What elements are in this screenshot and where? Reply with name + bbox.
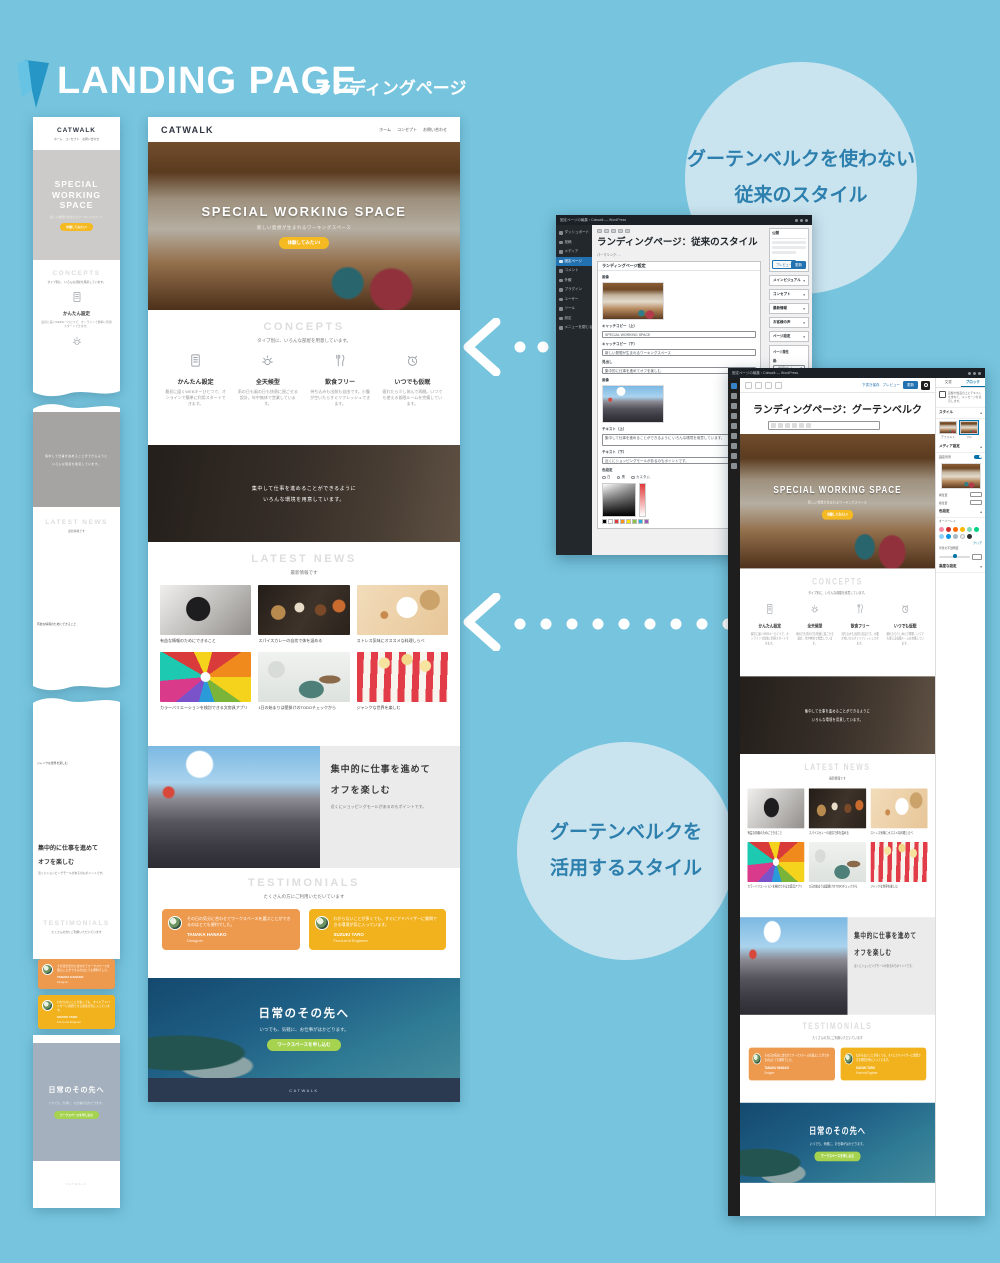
menu-users[interactable]: ユーザー [556, 295, 592, 305]
landing-page: CATWALK ホーム コンセプト お問い合わせ SPECIAL WORKING… [740, 434, 935, 1186]
news-image-hooks [258, 652, 349, 702]
wave-tear [33, 682, 120, 706]
spacer [33, 1035, 120, 1043]
testimonials-heading-block: TESTIMONIALS たくさんの方にご利用いただいています [33, 911, 120, 959]
concept-title: かんたん設定 [164, 377, 227, 386]
banner-line1: 集中して仕事を進めることができるように [805, 708, 870, 714]
news-caption: 有益な情報のためにできること [748, 831, 805, 835]
opacity-slider-row [936, 552, 985, 562]
site-footer: CATWALK [148, 1078, 460, 1102]
testimonial-card: わからないことが多くても、すぐにアドバイザーに質問できる環境が気に入っています。… [840, 1048, 926, 1081]
news-card[interactable]: ジャンクな世界を楽しむ [870, 842, 927, 889]
settings-gear-icon[interactable] [921, 381, 930, 390]
testimonial-name: SUZUKI TARO [57, 1015, 111, 1019]
palette-color[interactable] [939, 527, 944, 532]
testimonials-section: TESTIMONIALS たくさんの方にご利用いただいています その日の気分に合… [148, 868, 460, 978]
menu-settings[interactable]: 設定 [556, 314, 592, 324]
palette-color[interactable] [953, 527, 958, 532]
workstyle-banner-overlay: 集中して仕事を進めることができるように いろんな環境を用意しています。 [148, 445, 460, 542]
panel-title[interactable]: ページ属性 [773, 349, 805, 354]
concept-title: 飲食フリー [840, 622, 880, 629]
callout-text: グーテンベルクを [550, 815, 702, 851]
hero-image: SPECIAL WORKING SPACE 新しい発想が生まれるワーキングスペー… [740, 434, 935, 568]
news-card[interactable]: スパイスカレーの自炊で体を温める [258, 585, 349, 644]
news-caption: 有益な情報のためにできること [160, 638, 251, 644]
tool-icon[interactable] [731, 393, 737, 399]
panel-styles[interactable]: スタイル▴ [936, 408, 985, 419]
wp-admin-sidebar: ダッシュボード 投稿 メディア 固定ページ コメント 外観 プラグイン ユーザー… [556, 225, 592, 555]
concept-item: かんたん設定 最初に届くWEBキーひとつで、オンラインで簡単に利用スタートできま… [750, 603, 790, 647]
landing-page: CATWALK ホーム コンセプト お問い合わせ SPECIAL WORKING… [148, 117, 460, 1102]
panel-advanced[interactable]: 高度な設定▾ [936, 562, 985, 573]
callout-text: 従来のスタイル [734, 178, 867, 214]
focal-input-row: 縦位置 [936, 499, 985, 507]
news-card[interactable]: 有益な情報のためにできること [748, 788, 805, 835]
hero-cta-button[interactable]: 体験してみたい! [279, 237, 330, 249]
banner-line2: いろんな環境を用意しています。 [812, 717, 863, 723]
desktop-screenshot: CATWALK ホーム コンセプト お問い合わせ SPECIAL WORKING… [148, 117, 460, 1102]
side-panel[interactable]: ページ設定▾ [769, 331, 809, 342]
news-image-hooks [809, 842, 866, 882]
concepts-heading: CONCEPTS [148, 321, 460, 333]
news-card[interactable]: 1日の始まりは壁掛けのTODOチェックから [809, 842, 866, 889]
concept-desc: 最初に届くWEBキーひとつで、オンラインで簡単に利用スタートできます。 [750, 632, 790, 647]
workstyle-banner-overlay: 集中して仕事を進めることができるように いろんな環境を用意しています。 [33, 412, 120, 507]
testimonial-role: Front-end Engineer [334, 938, 441, 943]
testimonial-name: SUZUKI TARO [334, 932, 441, 937]
window-titlebar: 固定ページの編集 ‹ Catwalk — WordPress [728, 368, 985, 378]
testimonial-card: わからないことが多くても、すぐにアドバイザーに質問できる環境が気に入っています。… [38, 995, 115, 1029]
focal-y-input[interactable] [970, 500, 982, 505]
panel-media[interactable]: メディア設定▴ [936, 442, 985, 453]
concept-title: かんたん設定 [33, 311, 120, 317]
concepts-section: CONCEPTS タイプ別に、いろんな部屋を用意しています。 かんたん設定 最初… [740, 568, 935, 676]
palette-color[interactable] [946, 534, 951, 539]
cta-button[interactable]: ワークスペースを申し込む [815, 1152, 861, 1162]
palette-color[interactable] [939, 534, 944, 539]
post-title[interactable]: ランディングページ：従来のスタイル [597, 237, 761, 249]
concept-desc: 疲れたら少し休んで再開。いつでも使える仮眠ルームを完備しています。 [381, 389, 444, 408]
block-toolbar[interactable] [768, 421, 880, 430]
field-label: キャッチコピー（下） [602, 342, 756, 347]
field-label: キャッチコピー（上） [602, 324, 756, 329]
side-panel[interactable]: コンセプト▾ [769, 289, 809, 300]
side-panel[interactable]: メインビジュアル▾ [769, 275, 809, 286]
news-card[interactable]: ジャンクな世界を楽しむ [357, 652, 448, 711]
update-button[interactable]: 更新 [903, 381, 918, 389]
overlay-label-row: オーバーレイ [936, 518, 985, 525]
cta-overlay: 日常のその先へ いつでも、気軽に、お仕事がはかどります。 ワークスペースを申し込… [33, 1043, 120, 1161]
site-footer: CATWALK [33, 1161, 120, 1208]
publish-box: 公開 プレビュー 更新 [769, 228, 809, 272]
nav-item-contact[interactable]: お問い合わせ [82, 137, 99, 141]
testimonial-name: TANAKA HANAKO [57, 975, 111, 979]
site-nav: ホーム コンセプト お問い合わせ [54, 137, 99, 141]
testimonials-heading: TESTIMONIALS [740, 1022, 935, 1032]
field-label: 画像 [602, 275, 756, 280]
feature-line1: 集中的に仕事を進めて [331, 762, 449, 775]
banner-line2: いろんな環境を用意しています。 [52, 462, 101, 466]
panel-color[interactable]: 色設定▴ [936, 507, 985, 518]
palette-color[interactable] [946, 527, 951, 532]
cta-section-image: 日常のその先へ いつでも、気軽に、お仕事がはかどります。 ワークスペースを申し込… [148, 978, 460, 1078]
testimonial-text: わからないことが多くても、すぐにアドバイザーに質問できる環境が気に入っています。 [334, 916, 441, 929]
side-panel[interactable]: お客様の声▾ [769, 317, 809, 328]
sidebar-tabs: 文書 ブロック [936, 378, 985, 388]
wordpress-gutenberg-editor-window: 固定ページの編集 ‹ Catwalk — WordPress 下書き保存 [728, 368, 985, 1216]
palette-color[interactable] [974, 527, 979, 532]
news-caption: 1日の始まりは壁掛けのTODOチェックから [258, 705, 349, 711]
palette-color[interactable] [960, 534, 965, 539]
window-titlebar: 固定ページの編集 ‹ Catwalk — WordPress [556, 215, 812, 225]
nav-item-concept[interactable]: コンセプト [65, 137, 79, 141]
news-caption: ジャンクな世界を楽しむ [357, 705, 448, 711]
site-header: CATWALK ホーム コンセプト お問い合わせ [33, 117, 120, 150]
news-section: LATEST NEWS 最新情報です 有益な情報のためにできること スパイスカレ… [148, 542, 460, 746]
gutenberg-settings-sidebar: 文書 ブロック 画像や動画の上にテキストを重ねて、メッセージを表示します。 スタ… [935, 378, 985, 1216]
news-grid: 有益な情報のためにできること スパイスカレーの自炊で体を温める ストレス気味にオ… [148, 576, 460, 710]
concept-desc: 雨の日も風の日も快適に過ごせる設計。年中無休で営業しています。 [236, 389, 299, 408]
opacity-input[interactable] [972, 554, 982, 560]
nav-item-concept[interactable]: コンセプト [397, 127, 417, 133]
hue-bar[interactable] [639, 483, 646, 517]
news-heading: LATEST NEWS [740, 763, 935, 773]
hero-subtitle: 新しい発想が生まれるワーキングスペース [808, 500, 867, 505]
concept-title: いつでも仮眠 [381, 377, 444, 386]
feature-panel: 集中的に仕事を進めて オフを楽しむ 近くにショッピングモールがあるのもポイントで… [847, 917, 935, 1015]
banner-line1: 集中して仕事を進めることができるように [45, 454, 108, 458]
users-icon [559, 298, 563, 302]
text-input[interactable]: 新しい発想が生まれるワーキングスペース [602, 349, 756, 356]
callout-text: 活用するスタイル [550, 851, 702, 887]
testimonial-cards: その日の気分に合わせてワークスペースを選ぶことができるのはとても便利でした。 T… [740, 1040, 935, 1080]
news-image-cooking [357, 585, 448, 635]
style-option-selected[interactable]: フル [960, 421, 978, 439]
cta-text: いつでも、気軽に、お仕事がはかどります。 [810, 1142, 866, 1147]
testimonial-name: SUZUKI TARO [856, 1066, 923, 1070]
menu-plugins[interactable]: プラグイン [556, 285, 592, 295]
concept-desc: 最初に届くWEBキーひとつで、オンラインで簡単に利用スタートできます。 [164, 389, 227, 408]
tool-icon[interactable] [731, 443, 737, 449]
post-title[interactable]: ランディングページ：グーテンベルク [740, 401, 935, 416]
news-image-clock [33, 567, 120, 619]
news-image-pencils [748, 842, 805, 882]
concepts-grid: かんたん設定 最初に届くWEBキーひとつで、オンラインで簡単に利用スタートできま… [148, 344, 460, 408]
field-image-thumbnail[interactable] [602, 385, 664, 423]
menu-collapse[interactable]: メニューを閉じる [556, 323, 592, 333]
concepts-grid: かんたん設定 最初に届くWEBキーひとつで、オンラインで簡単に利用スタートできま… [740, 596, 935, 647]
news-card[interactable]: ストレス気味にオススメな料理しらべ [870, 788, 927, 835]
palette-color[interactable] [967, 527, 972, 532]
feature-desc: 近くにショッピングモールがあるのもポイントです。 [38, 871, 115, 875]
permalink-row[interactable]: パーマリンク: … [597, 252, 761, 257]
hero-subtitle: 新しい発想が生まれるワーキングスペース [50, 215, 103, 219]
news-card[interactable]: ストレス気味にオススメな料理しらべ [357, 585, 448, 644]
menu-pages[interactable]: 固定ページ [556, 257, 592, 267]
callout-text: グーテンベルクを使わない [687, 142, 915, 178]
feature-line1: 集中的に仕事を進めて [854, 930, 928, 940]
poster-canvas: LANDING PAGE ランディングページ グーテンベルクを使わない 従来のス… [0, 0, 1000, 1263]
dashboard-icon [559, 231, 563, 235]
news-section-heading: LATEST NEWS 最新情報です [33, 507, 120, 567]
wave-tear [33, 388, 120, 412]
document-icon [71, 291, 83, 303]
cutlery-icon [333, 353, 348, 368]
concept-title: 全天候型 [795, 622, 835, 629]
testimonial-card: その日の気分に合わせてワークスペースを選ぶことができるのはとても便利でした。 T… [38, 959, 115, 989]
news-image-clock [160, 585, 251, 635]
news-lead: 最新情報です [33, 529, 120, 533]
style-option[interactable]: デフォルト [939, 421, 957, 439]
window-controls[interactable] [795, 219, 808, 222]
site-logo[interactable]: CATWALK [161, 125, 214, 135]
mobile-screenshot-strip: CATWALK ホーム コンセプト お問い合わせ SPECIAL WORKING… [33, 117, 120, 1215]
testimonial-card: わからないことが多くても、すぐにアドバイザーに質問できる環境が気に入っています。… [309, 909, 447, 950]
tool-icon[interactable] [731, 413, 737, 419]
info-icon[interactable] [775, 382, 782, 389]
news-image-popcorn [357, 652, 448, 702]
style-thumbnails: デフォルト フル [936, 419, 985, 442]
page-title: LANDING PAGE [57, 60, 358, 103]
banner-line1: 集中して仕事を進めることができるように [252, 485, 356, 492]
feature-panel: 集中的に仕事を進めて オフを楽しむ 近くにショッピングモールがあるのもポイントで… [33, 833, 120, 911]
site-logo[interactable]: CATWALK [57, 127, 96, 134]
hero-overlay: SPECIAL WORKING SPACE 新しい発想が生まれるワーキングスペー… [740, 434, 935, 568]
document-icon [765, 603, 774, 615]
news-caption: スパイスカレーの自炊で体を温める [809, 831, 866, 835]
concepts-heading: CONCEPTS [33, 270, 120, 277]
browser-side-strip [728, 378, 740, 1216]
alarm-clock-icon [405, 353, 420, 368]
feature-image-market [148, 746, 320, 868]
pages-icon [559, 260, 563, 264]
hero-image: SPECIAL WORKING SPACE 新しい発想が生まれるワーキングスペー… [33, 150, 120, 260]
tool-icon[interactable] [731, 433, 737, 439]
concept-desc: 疲れたら少し休んで再開。いつでも使える仮眠ルームを完備しています。 [885, 632, 925, 647]
feature-image-market [740, 917, 847, 1015]
page-subtitle: ランディングページ [315, 74, 466, 99]
concept-title: 全天候型 [236, 377, 299, 386]
workstyle-banner-image: 集中して仕事を進めることができるように いろんな環境を用意しています。 [740, 676, 935, 754]
cta-heading: 日常のその先へ [809, 1124, 866, 1137]
menu-comments[interactable]: コメント [556, 266, 592, 276]
metabox-title[interactable]: ランディングページ設定 [598, 262, 760, 271]
posts-icon [559, 241, 563, 245]
redo-icon[interactable] [765, 382, 772, 389]
field-label: 見出し [602, 360, 756, 365]
block-description: 画像や動画の上にテキストを重ねて、メッセージを表示します。 [936, 388, 985, 408]
preview-button[interactable]: プレビュー [883, 383, 901, 388]
menu-tools[interactable]: ツール [556, 304, 592, 314]
workstyle-banner-overlay: 集中して仕事を進めることができるように いろんな環境を用意しています。 [740, 676, 935, 754]
cta-button[interactable]: ワークスペースを申し込む [54, 1111, 99, 1119]
palette-color[interactable] [953, 534, 958, 539]
weather-icon [71, 335, 83, 347]
focal-x-input[interactable] [970, 492, 982, 497]
tool-icon[interactable] [731, 423, 737, 429]
feature-desc: 近くにショッピングモールがあるのもポイントです。 [854, 964, 928, 969]
concept-desc: 雨の日も風の日も快適に過ごせる設計。年中無休で営業しています。 [795, 632, 835, 647]
brand-pennant-icon [17, 60, 51, 110]
palette-color[interactable] [960, 527, 965, 532]
concepts-heading: CONCEPTS [740, 577, 935, 587]
settings-icon [559, 317, 563, 321]
toggle-switch[interactable] [974, 455, 982, 459]
plugins-icon [559, 288, 563, 292]
fixed-background-toggle-row: 固定背景 [936, 453, 985, 461]
banner-line2: いろんな環境を用意しています。 [263, 496, 345, 503]
cta-button[interactable]: ワークスペースを申し込む [267, 1039, 340, 1051]
concept-item: 全天候型 雨の日も風の日も快適に過ごせる設計。年中無休で営業しています。 [795, 603, 835, 647]
inserter-icon[interactable] [731, 383, 737, 389]
palette-color[interactable] [967, 534, 972, 539]
document-icon [188, 353, 203, 368]
testimonials-heading: TESTIMONIALS [148, 877, 460, 889]
nav-item-home[interactable]: ホーム [54, 137, 62, 141]
news-caption: 有益な情報のためにできること [33, 619, 120, 632]
testimonial-role: Designer [187, 938, 294, 943]
news-caption: ジャンクな世界を楽しむ [33, 758, 120, 771]
save-draft-button[interactable]: 下書き保存 [862, 383, 880, 388]
concept-title: かんたん設定 [750, 622, 790, 629]
news-image-popcorn [33, 706, 120, 758]
site-nav: ホーム コンセプト お問い合わせ [379, 127, 447, 133]
concept-title: 飲食フリー [309, 377, 372, 386]
testimonial-text: その日の気分に合わせてワークスペースを選ぶことができるのはとても便利でした。 [57, 964, 111, 973]
color-palette[interactable] [936, 525, 985, 541]
gutenberg-page-preview: CATWALK ホーム コンセプト お問い合わせ SPECIAL WORKING… [740, 434, 935, 1186]
news-caption: ストレス気味にオススメな料理しらべ [357, 638, 448, 644]
nav-item-contact[interactable]: お問い合わせ [423, 127, 447, 133]
appearance-icon [559, 279, 563, 283]
menu-dashboard[interactable]: ダッシュボード [556, 228, 592, 238]
hero-cta-button[interactable]: 体験してみたい! [822, 510, 854, 520]
field-image-thumbnail[interactable] [602, 282, 664, 320]
cover-block-icon [939, 391, 946, 398]
alarm-clock-icon [901, 603, 910, 615]
cta-text: いつでも、気軽に、お仕事がはかどります。 [259, 1027, 348, 1033]
feature-section: 集中的に仕事を進めて オフを楽しむ 近くにショッピングモールがあるのもポイントで… [740, 917, 935, 1015]
news-card[interactable]: カラーバリエーションを検討できる文房具アプリ [160, 652, 251, 711]
news-caption: スパイスカレーの自炊で体を温める [258, 638, 349, 644]
site-header: CATWALK ホーム コンセプト お問い合わせ [148, 117, 460, 142]
feature-section: 集中的に仕事を進めて オフを楽しむ 近くにショッピングモールがあるのもポイントで… [148, 746, 460, 868]
saturation-square[interactable] [602, 483, 636, 517]
cta-overlay: 日常のその先へ いつでも、気軽に、お仕事がはかどります。 ワークスペースを申し込… [740, 1103, 935, 1183]
feature-line1: 集中的に仕事を進めて [38, 843, 115, 852]
news-card[interactable]: カラーバリエーションを検討できる文房具アプリ [748, 842, 805, 889]
tab-document[interactable]: 文書 [936, 378, 961, 387]
window-controls[interactable] [968, 372, 981, 375]
news-heading: LATEST NEWS [148, 553, 460, 565]
cta-section-image: 日常のその先へ いつでも、気軽に、お仕事がはかどります。 ワークスペースを申し込… [740, 1103, 935, 1183]
opacity-label-row: 背景の不透明度 [936, 545, 985, 552]
news-card[interactable]: 1日の始まりは壁掛けのTODOチェックから [258, 652, 349, 711]
news-image-pencils [160, 652, 251, 702]
testimonial-cards: その日の気分に合わせてワークスペースを選ぶことができるのはとても便利でした。 T… [148, 900, 460, 950]
hero-cta-button[interactable]: 体験してみたい! [60, 223, 92, 231]
testimonial-name: TANAKA HANAKO [187, 932, 294, 937]
editor-canvas: 下書き保存 プレビュー 更新 ランディングページ：グーテンベルク CATWALK… [740, 378, 935, 1216]
text-input[interactable]: SPECIAL WORKING SPACE [602, 331, 756, 338]
block-desc-text: 画像や動画の上にテキストを重ねて、メッセージを表示します。 [948, 391, 982, 404]
tab-block[interactable]: ブロック [961, 378, 986, 387]
avatar [168, 916, 182, 930]
workstyle-banner-image: 集中して仕事を進めることができるように いろんな環境を用意しています。 [33, 412, 120, 507]
editor-toolbar[interactable] [597, 229, 761, 233]
testimonial-role: Front-end Engineer [856, 1071, 923, 1075]
news-card[interactable]: スパイスカレーの自炊で体を温める [809, 788, 866, 835]
menu-media[interactable]: メディア [556, 247, 592, 257]
field-label: 親: [773, 358, 805, 363]
tool-icon[interactable] [731, 403, 737, 409]
concept-title: いつでも仮眠 [885, 622, 925, 629]
concept-desc: 最初に届くWEBキーひとつで、オンラインで簡単に利用スタートできます。 [33, 320, 120, 328]
workstyle-banner-image: 集中して仕事を進めることができるように いろんな環境を用意しています。 [148, 445, 460, 542]
cta-section-image: 日常のその先へ いつでも、気軽に、お仕事がはかどります。 ワークスペースを申し込… [33, 1043, 120, 1161]
news-image-popcorn [870, 842, 927, 882]
weather-icon [810, 603, 819, 615]
testimonials-section: TESTIMONIALS たくさんの方にご利用いただいています その日の気分に合… [740, 1015, 935, 1103]
concepts-section: CONCEPTS タイプ別に、いろんな部屋を用意しています。 かんたん設定 最初… [33, 260, 120, 388]
hero-title: SPECIAL WORKING SPACE [773, 483, 901, 495]
update-button[interactable]: 更新 [791, 261, 806, 269]
window-title: 固定ページの編集 ‹ Catwalk — WordPress [560, 218, 626, 223]
weather-icon [260, 353, 275, 368]
news-heading: LATEST NEWS [33, 519, 120, 526]
concept-desc: 持ち込みも出前も自由です。小腹が空いたらすぐリフレッシュできます。 [840, 632, 880, 647]
tool-icon[interactable] [731, 463, 737, 469]
cover-image-preview [941, 463, 981, 489]
news-image-spice-spoons [258, 585, 349, 635]
hero-overlay: SPECIAL WORKING SPACE 新しい発想が生まれるワーキングスペー… [148, 142, 460, 310]
testimonial-name: TANAKA HANAKO [764, 1066, 831, 1070]
testimonial-role: Designer [764, 1071, 831, 1075]
news-card[interactable]: 有益な情報のためにできること [160, 585, 251, 644]
menu-posts[interactable]: 投稿 [556, 238, 592, 248]
concepts-section: CONCEPTS タイプ別に、いろんな部屋を用意しています。 かんたん設定 最初… [148, 310, 460, 445]
avatar [42, 964, 53, 975]
nav-item-home[interactable]: ホーム [379, 127, 391, 133]
news-image-cooking [870, 788, 927, 828]
testimonial-card: その日の気分に合わせてワークスペースを選ぶことができるのはとても便利でした。 T… [162, 909, 300, 950]
slider-track[interactable] [939, 556, 970, 558]
cta-heading: 日常のその先へ [259, 1005, 350, 1021]
news-caption: ストレス気味にオススメな料理しらべ [870, 831, 927, 835]
feature-panel: 集中的に仕事を進めて オフを楽しむ 近くにショッピングモールがあるのもポイントで… [320, 746, 460, 868]
testimonial-text: その日の気分に合わせてワークスペースを選ぶことができるのはとても便利でした。 [187, 916, 294, 929]
feature-image-market [33, 771, 120, 833]
concept-item: 飲食フリー 持ち込みも出前も自由です。小腹が空いたらすぐリフレッシュできます。 [309, 353, 372, 408]
cutlery-icon [855, 603, 864, 615]
add-block-icon[interactable] [745, 382, 752, 389]
window-title: 固定ページの編集 ‹ Catwalk — WordPress [732, 371, 798, 376]
undo-icon[interactable] [755, 382, 762, 389]
news-image-spice-spoons [33, 632, 120, 682]
testimonial-text: わからないことが多くても、すぐにアドバイザーに質問できる環境が気に入っています。 [57, 1000, 111, 1013]
feature-line2: オフを楽しむ [38, 857, 115, 866]
callout-gutenberg-style: グーテンベルクを 活用するスタイル [517, 742, 735, 960]
news-caption: カラーバリエーションを検討できる文房具アプリ [748, 884, 805, 888]
concept-item: いつでも仮眠 疲れたら少し休んで再開。いつでも使える仮眠ルームを完備しています。 [381, 353, 444, 408]
feature-desc: 近くにショッピングモールがあるのもポイントです。 [331, 804, 449, 810]
side-panel[interactable]: 最新情報▾ [769, 303, 809, 314]
tool-icon[interactable] [731, 453, 737, 459]
avatar [844, 1053, 853, 1064]
publish-tab[interactable]: 公開 [772, 231, 806, 239]
menu-appearance[interactable]: 外観 [556, 276, 592, 286]
cta-overlay: 日常のその先へ いつでも、気軽に、お仕事がはかどります。 ワークスペースを申し込… [148, 978, 460, 1078]
